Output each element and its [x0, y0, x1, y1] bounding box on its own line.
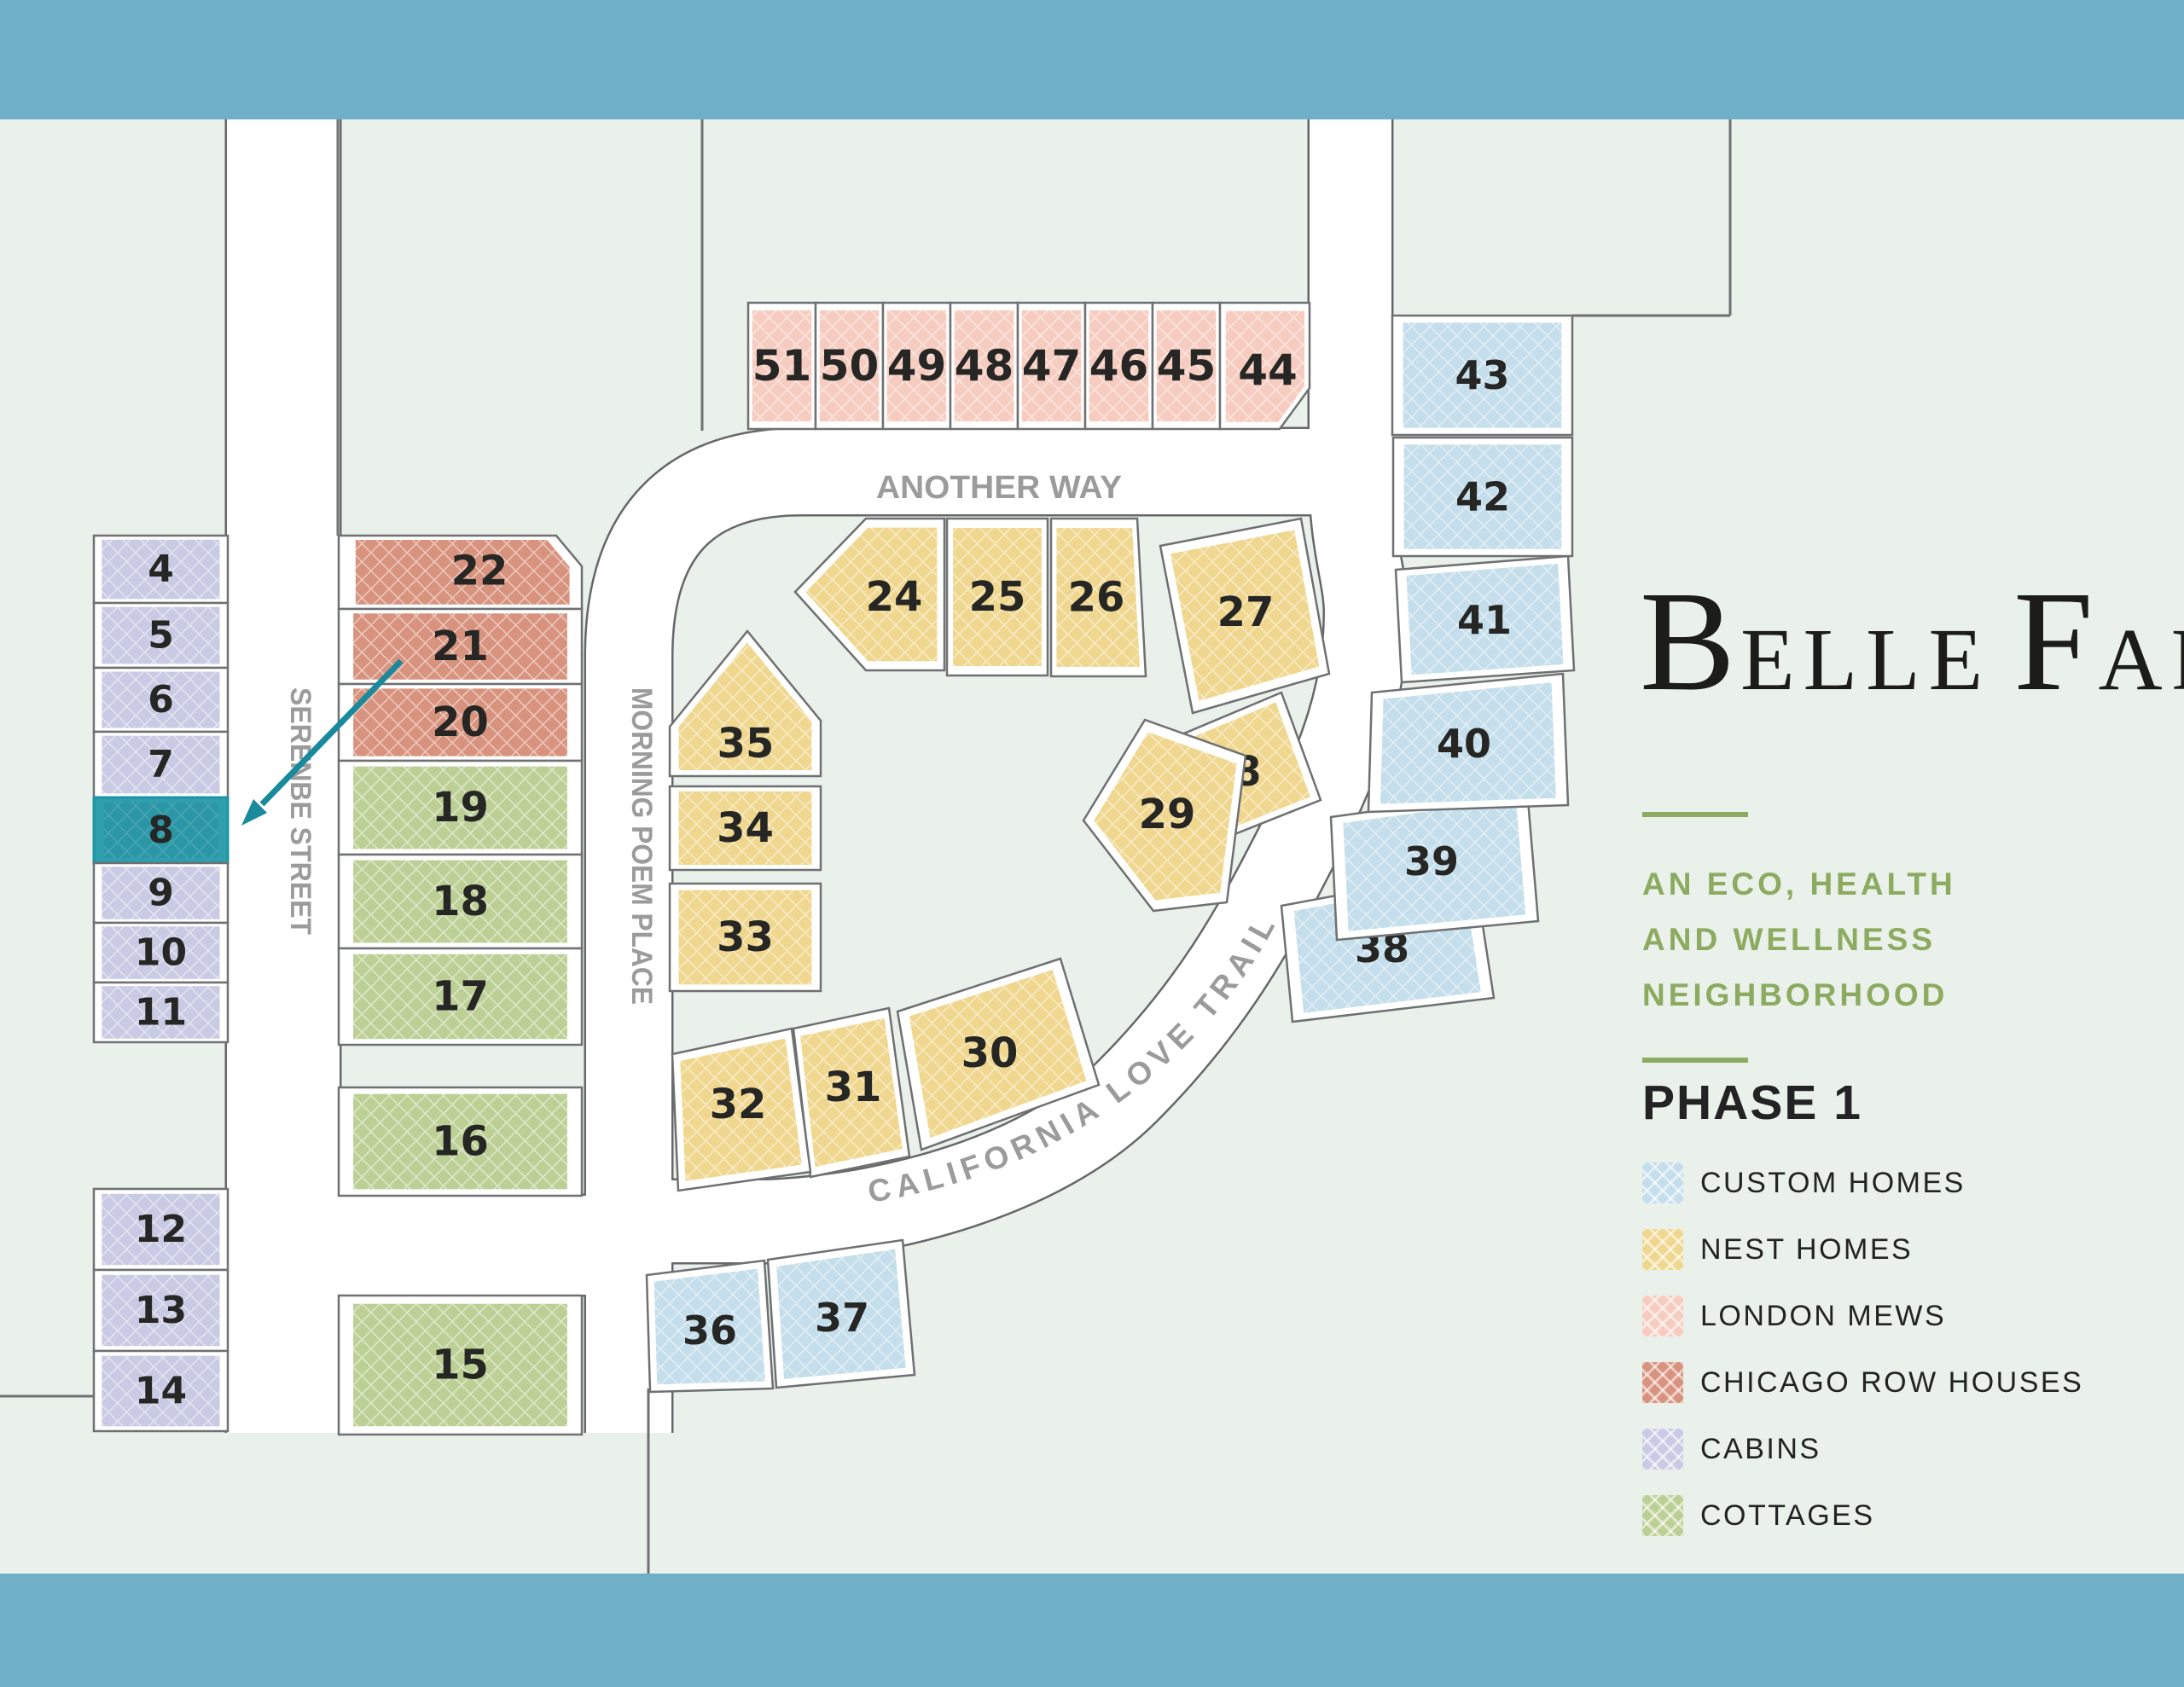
lot-34[interactable]: 34	[670, 786, 821, 870]
lot-17-number: 17	[432, 973, 489, 1021]
legend-swatch-custom	[1642, 1162, 1683, 1203]
lot-49[interactable]: 49	[883, 303, 950, 429]
legend-item-cabins: CABINS	[1642, 1416, 2083, 1482]
lot-27-number: 27	[1217, 588, 1275, 636]
legend-swatch-cottages	[1642, 1495, 1683, 1536]
phase-heading: PHASE 1	[1642, 1075, 1862, 1131]
lot-25-number: 25	[969, 573, 1026, 621]
lot-22[interactable]: 22	[339, 536, 582, 609]
lot-41[interactable]: 41	[1396, 556, 1574, 682]
lot-18-number: 18	[432, 878, 489, 925]
tagline-line-3: NEIGHBORHOOD	[1642, 967, 1956, 1023]
tagline-line-1: AN ECO, HEALTH	[1642, 856, 1956, 912]
lot-50[interactable]: 50	[816, 303, 883, 429]
legend-swatch-london	[1642, 1296, 1683, 1336]
lot-29-number: 29	[1139, 791, 1196, 838]
lot-9-number: 9	[148, 872, 174, 915]
lot-11[interactable]: 11	[94, 983, 228, 1042]
street-label-another-way: ANOTHER WAY	[876, 470, 1122, 506]
tagline: AN ECO, HEALTH AND WELLNESS NEIGHBORHOOD	[1642, 856, 1956, 1023]
lot-13[interactable]: 13	[94, 1270, 228, 1351]
lot-36[interactable]: 36	[647, 1261, 773, 1392]
lot-37-number: 37	[815, 1295, 869, 1341]
lot-10[interactable]: 10	[94, 923, 228, 983]
top-bar	[0, 0, 2184, 119]
legend-label-custom: CUSTOM HOMES	[1700, 1167, 1966, 1200]
legend-item-chicago: CHICAGO ROW HOUSES	[1642, 1349, 2083, 1416]
lot-20[interactable]: 20	[339, 684, 582, 761]
lot-39-number: 39	[1404, 838, 1459, 884]
legend-item-nest: NEST HOMES	[1642, 1216, 2083, 1283]
lot-7-number: 7	[148, 743, 174, 786]
lot-42[interactable]: 42	[1393, 438, 1572, 556]
lot-10-number: 10	[135, 931, 187, 975]
lot-13-number: 13	[135, 1289, 187, 1332]
lot-12-number: 12	[135, 1208, 187, 1251]
lot-22-number: 22	[451, 548, 508, 595]
lot-26-number: 26	[1068, 574, 1125, 622]
lot-19[interactable]: 19	[339, 761, 582, 855]
street-label-morning-poem: MORNING POEM PLACE	[625, 687, 658, 1005]
lot-49-number: 49	[887, 341, 947, 391]
lot-46[interactable]: 46	[1085, 303, 1153, 429]
lot-21-number: 21	[432, 623, 489, 670]
lot-26[interactable]: 26	[1051, 519, 1146, 676]
lot-45[interactable]: 45	[1153, 303, 1220, 429]
lot-16-number: 16	[432, 1118, 489, 1166]
accent-rule-bottom	[1642, 1058, 1748, 1063]
lot-47-number: 47	[1022, 341, 1082, 391]
lot-14-number: 14	[135, 1370, 187, 1413]
lot-42-number: 42	[1455, 474, 1510, 520]
lot-31-number: 31	[825, 1064, 882, 1111]
legend-item-custom: CUSTOM HOMES	[1642, 1150, 2083, 1216]
legend-label-cabins: CABINS	[1700, 1433, 1821, 1466]
legend: CUSTOM HOMESNEST HOMESLONDON MEWSCHICAGO…	[1642, 1150, 2083, 1549]
lot-32[interactable]: 32	[672, 1029, 810, 1191]
street-label-serenbe: SERENBE STREET	[284, 687, 317, 935]
bottom-bar	[0, 1574, 2184, 1687]
logo-initial-b: B	[1640, 562, 1740, 721]
lot-40-number: 40	[1437, 721, 1491, 767]
lot-9[interactable]: 9	[94, 863, 228, 923]
belle-farm-logo: BELLEFARM	[1640, 570, 2152, 713]
legend-label-nest: NEST HOMES	[1700, 1233, 1913, 1267]
legend-item-london: LONDON MEWS	[1642, 1283, 2083, 1349]
legend-label-chicago: CHICAGO ROW HOUSES	[1700, 1366, 2083, 1400]
lot-8[interactable]: 8	[94, 797, 228, 863]
lot-48-number: 48	[955, 341, 1014, 391]
lot-15[interactable]: 15	[339, 1296, 582, 1435]
accent-rule-top	[1642, 812, 1748, 817]
lot-4[interactable]: 4	[94, 536, 228, 603]
lot-36-number: 36	[682, 1307, 737, 1354]
legend-swatch-cabins	[1642, 1429, 1683, 1470]
lot-5[interactable]: 5	[94, 603, 228, 668]
lot-37[interactable]: 37	[768, 1240, 915, 1388]
legend-swatch-nest	[1642, 1229, 1683, 1270]
lot-35-number: 35	[717, 720, 775, 768]
lot-33-number: 33	[717, 913, 774, 961]
lot-20-number: 20	[432, 699, 489, 746]
lot-6-number: 6	[148, 678, 174, 722]
lot-19-number: 19	[432, 784, 489, 832]
lot-46-number: 46	[1089, 341, 1149, 391]
lot-30-number: 30	[961, 1029, 1019, 1077]
lot-24-number: 24	[866, 573, 923, 621]
lot-48[interactable]: 48	[950, 303, 1018, 429]
lot-33[interactable]: 33	[670, 884, 821, 991]
lot-51[interactable]: 51	[748, 303, 816, 429]
lot-14[interactable]: 14	[94, 1351, 228, 1431]
lot-44-number: 44	[1238, 345, 1298, 395]
lot-43[interactable]: 43	[1392, 316, 1572, 435]
lot-39[interactable]: 39	[1331, 790, 1538, 940]
lot-50-number: 50	[820, 341, 880, 391]
lot-4-number: 4	[148, 548, 174, 591]
lot-15-number: 15	[432, 1342, 489, 1389]
lot-51-number: 51	[752, 341, 812, 391]
legend-label-cottages: COTTAGES	[1700, 1499, 1875, 1533]
lot-21[interactable]: 21	[339, 609, 582, 684]
lot-31[interactable]: 31	[793, 1008, 909, 1177]
belle-farm-site-map: 4567891011121314222120191817161551504948…	[0, 0, 2184, 1687]
lot-32-number: 32	[710, 1081, 767, 1128]
legend-swatch-chicago	[1642, 1362, 1683, 1403]
tagline-line-2: AND WELLNESS	[1642, 912, 1956, 967]
lot-34-number: 34	[717, 804, 774, 852]
lot-8-number: 8	[148, 809, 174, 852]
lot-12[interactable]: 12	[94, 1189, 228, 1270]
lot-7[interactable]: 7	[94, 732, 228, 797]
legend-item-cottages: COTTAGES	[1642, 1482, 2083, 1549]
legend-label-london: LONDON MEWS	[1700, 1300, 1946, 1333]
lot-17[interactable]: 17	[339, 948, 582, 1045]
lot-45-number: 45	[1157, 341, 1217, 391]
lot-40[interactable]: 40	[1368, 674, 1568, 812]
lot-11-number: 11	[135, 991, 187, 1035]
lot-6[interactable]: 6	[94, 668, 228, 732]
lot-16[interactable]: 16	[339, 1087, 582, 1196]
lot-5-number: 5	[148, 614, 174, 658]
lot-25[interactable]: 25	[947, 519, 1048, 675]
lot-47[interactable]: 47	[1018, 303, 1085, 429]
lot-18[interactable]: 18	[339, 855, 582, 948]
logo-initial-f: F	[2013, 562, 2098, 721]
lot-43-number: 43	[1455, 352, 1509, 398]
lot-41-number: 41	[1457, 597, 1512, 643]
